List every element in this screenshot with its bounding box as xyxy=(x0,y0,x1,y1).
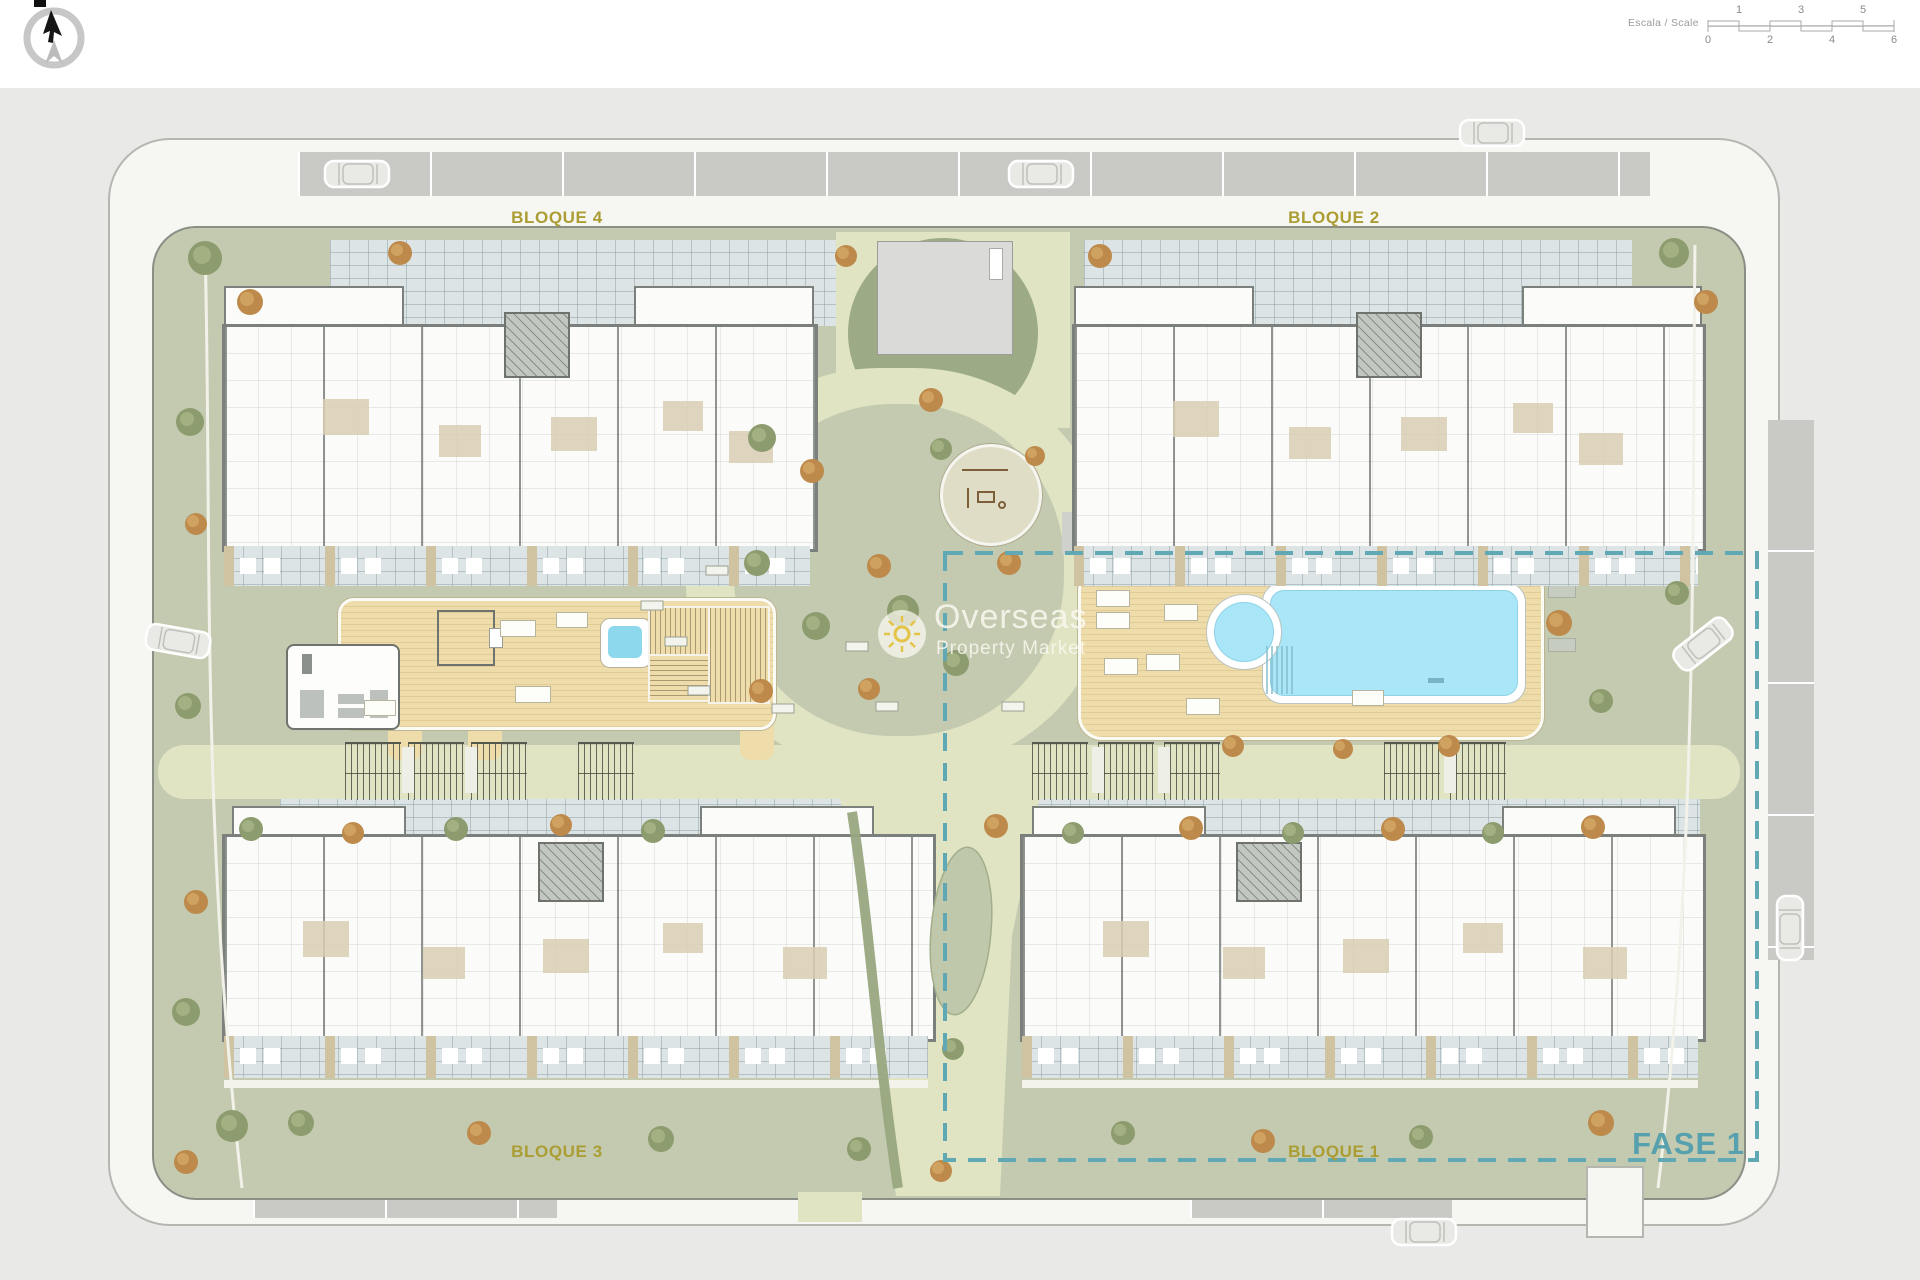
stair-core xyxy=(1356,312,1422,378)
carport-divider xyxy=(402,747,414,793)
bloque-1-label: BLOQUE 1 xyxy=(1234,1142,1434,1162)
carport-pergola xyxy=(408,742,464,800)
carport-divider xyxy=(1092,747,1104,793)
carport-pergola xyxy=(1384,742,1440,800)
pergola-structure xyxy=(437,610,495,666)
carport-pergola xyxy=(1164,742,1220,800)
bottom-road-parking-right xyxy=(1190,1198,1452,1218)
sun-lounger xyxy=(1146,654,1180,671)
terrace-bloque2 xyxy=(1074,546,1698,586)
kids-pool-water xyxy=(1214,602,1274,662)
building-bloque1 xyxy=(1020,834,1706,1042)
gym-equipment xyxy=(338,708,364,718)
scale-tick: 6 xyxy=(1891,34,1897,46)
stair-core xyxy=(538,842,604,902)
gym-equipment xyxy=(300,690,324,718)
kids-pool xyxy=(1206,594,1282,670)
jacuzzi xyxy=(600,618,652,668)
pool-water xyxy=(1270,590,1518,696)
carport-divider xyxy=(1158,747,1170,793)
garden-lounger xyxy=(1548,638,1576,652)
scale-tick: 4 xyxy=(1829,34,1835,46)
scale-tick: 0 xyxy=(1705,34,1711,46)
watermark-sun-badge xyxy=(878,610,926,658)
deck-slats xyxy=(708,606,770,704)
swimming-pool xyxy=(1262,582,1526,704)
terrace-bloque3 xyxy=(224,1036,928,1078)
gym-building xyxy=(286,644,400,730)
bloque-4-label: BLOQUE 4 xyxy=(457,208,657,228)
terrace-bloque4 xyxy=(224,546,810,586)
garden-lounger xyxy=(1548,584,1576,598)
scale-tick: 5 xyxy=(1860,4,1866,16)
scale-label: Escala / Scale xyxy=(1628,17,1699,29)
carport-pergola xyxy=(1098,742,1154,800)
promenade-exit xyxy=(798,1192,862,1222)
scale-tick: 3 xyxy=(1798,4,1804,16)
bloque-2-label: BLOQUE 2 xyxy=(1234,208,1434,228)
site-plan-page: Escala / Scale 1 3 5 0 2 4 6 xyxy=(0,0,1920,1280)
sun-lounger xyxy=(500,620,536,637)
jacuzzi-water xyxy=(608,626,642,658)
watermark-title: Overseas xyxy=(934,598,1088,637)
fase-1-label: FASE 1 xyxy=(1545,1126,1745,1162)
garden-walk xyxy=(1022,1080,1698,1088)
sun-lounger xyxy=(515,686,551,703)
carport-pergola xyxy=(1032,742,1088,800)
scale-tick: 1 xyxy=(1736,4,1742,16)
watermark: Overseas Property Market xyxy=(878,602,1138,672)
driveway-entry xyxy=(1586,1166,1644,1238)
entrance-plaza xyxy=(877,241,1013,355)
sun-lounger xyxy=(1186,698,1220,715)
right-road-parking xyxy=(1768,420,1814,960)
sun-icon xyxy=(878,610,926,658)
north-compass-icon xyxy=(18,2,90,74)
sun-lounger xyxy=(556,612,588,628)
scale-tick: 2 xyxy=(1767,34,1773,46)
watermark-subtitle: Property Market xyxy=(936,638,1086,660)
scale-bar: Escala / Scale 1 3 5 0 2 4 6 xyxy=(1628,4,1914,50)
deck-slats xyxy=(648,606,710,656)
bloque-3-label: BLOQUE 3 xyxy=(457,1142,657,1162)
stair-core xyxy=(1236,842,1302,902)
gym-equipment xyxy=(302,654,312,674)
sun-lounger xyxy=(1352,690,1384,706)
carport-pergola xyxy=(578,742,634,800)
carport-pergola xyxy=(345,742,401,800)
carport-pergola xyxy=(1450,742,1506,800)
deck-slats xyxy=(648,654,710,702)
top-road-parking xyxy=(298,152,1650,196)
sun-lounger xyxy=(364,700,396,716)
bottom-road-parking-left xyxy=(253,1198,557,1218)
terrace-bloque1 xyxy=(1022,1036,1698,1078)
garden-walk xyxy=(224,1080,928,1088)
playground xyxy=(940,444,1042,546)
carport-divider xyxy=(1444,747,1456,793)
carport-pergola xyxy=(471,742,527,800)
gym-equipment xyxy=(338,694,364,704)
plaza-detail xyxy=(989,248,1003,280)
sun-lounger xyxy=(1164,604,1198,621)
carport-divider xyxy=(465,747,477,793)
stair-core xyxy=(504,312,570,378)
